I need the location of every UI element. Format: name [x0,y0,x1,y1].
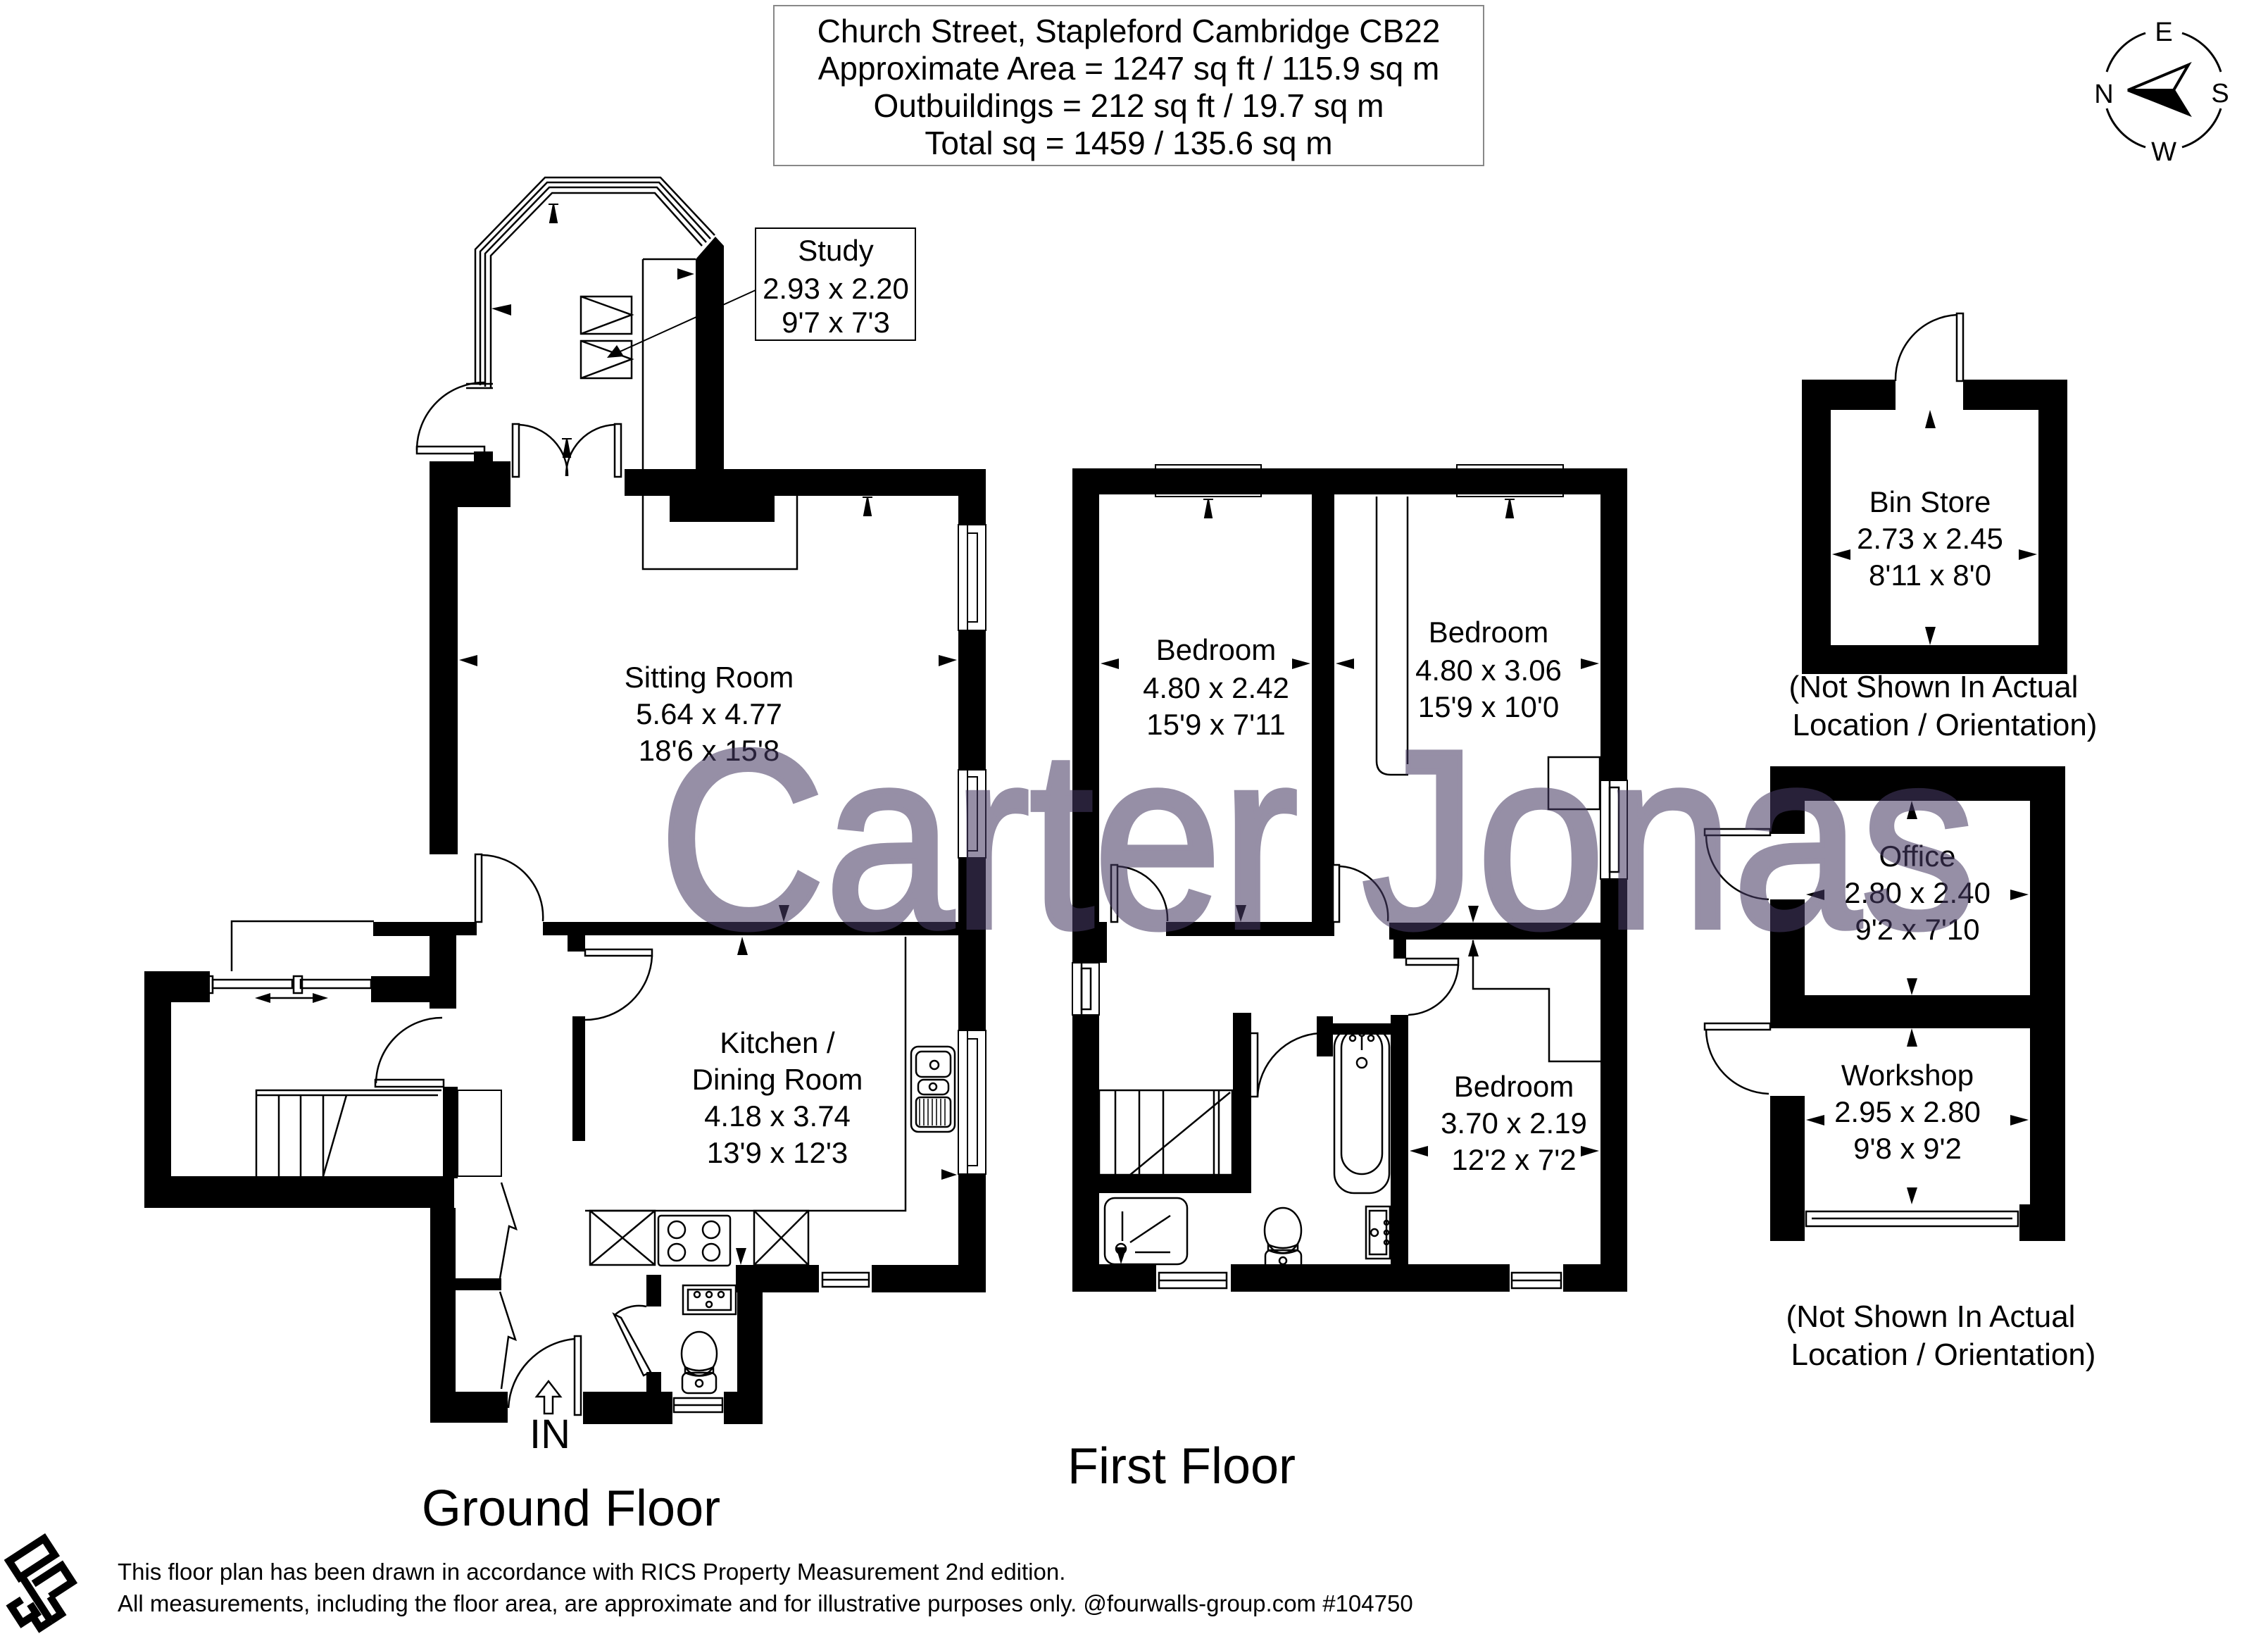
svg-text:Location / Orientation): Location / Orientation) [1791,1337,2096,1372]
svg-text:3.70 x 2.19: 3.70 x 2.19 [1441,1106,1587,1140]
svg-text:Bin Store: Bin Store [1869,485,1991,518]
svg-text:9'8 x 9'2: 9'8 x 9'2 [1853,1132,1962,1165]
svg-text:First Floor: First Floor [1067,1438,1296,1495]
svg-text:13'9 x 12'3: 13'9 x 12'3 [707,1136,848,1169]
svg-text:Bedroom: Bedroom [1454,1070,1574,1103]
svg-text:9'7 x 7'3: 9'7 x 7'3 [782,306,890,339]
svg-text:4.80 x 3.06: 4.80 x 3.06 [1415,654,1562,687]
svg-text:Outbuildings = 212 sq ft / 19.: Outbuildings = 212 sq ft / 19.7 sq m [874,87,1384,124]
svg-text:Carter Jonas: Carter Jonas [659,698,1976,981]
svg-text:2.95 x 2.80: 2.95 x 2.80 [1834,1095,1981,1128]
svg-text:Bedroom: Bedroom [1156,633,1276,666]
svg-text:N: N [2094,80,2113,109]
svg-text:Ground Floor: Ground Floor [422,1480,720,1537]
svg-text:Sitting Room: Sitting Room [625,661,794,694]
svg-text:Approximate Area = 1247 sq ft: Approximate Area = 1247 sq ft / 115.9 sq… [818,50,1440,87]
svg-text:8'11 x 8'0: 8'11 x 8'0 [1869,559,1991,592]
svg-text:IN: IN [530,1411,570,1457]
svg-text:Dining Room: Dining Room [692,1063,863,1096]
svg-text:All measurements, including th: All measurements, including the floor ar… [118,1590,1413,1616]
svg-text:4.18 x 3.74: 4.18 x 3.74 [704,1099,851,1133]
svg-text:(Not Shown In Actual: (Not Shown In Actual [1786,1299,2076,1334]
svg-text:12'2 x 7'2: 12'2 x 7'2 [1451,1143,1576,1176]
svg-text:Church Street, Stapleford Camb: Church Street, Stapleford Cambridge CB22 [817,13,1441,49]
svg-text:2.93 x 2.20: 2.93 x 2.20 [763,272,909,305]
svg-text:Study: Study [798,234,873,267]
svg-text:Workshop: Workshop [1841,1059,1974,1092]
svg-text:This floor plan has been drawn: This floor plan has been drawn in accord… [118,1559,1065,1585]
svg-text:S: S [2211,79,2229,108]
svg-text:W: W [2151,137,2176,167]
svg-text:Bedroom: Bedroom [1429,616,1548,649]
svg-text:2.73 x 2.45: 2.73 x 2.45 [1857,522,2003,555]
svg-text:E: E [2155,18,2172,47]
svg-text:Kitchen /: Kitchen / [720,1026,835,1059]
svg-text:Total sq = 1459 / 135.6 sq m: Total sq = 1459 / 135.6 sq m [925,125,1332,161]
